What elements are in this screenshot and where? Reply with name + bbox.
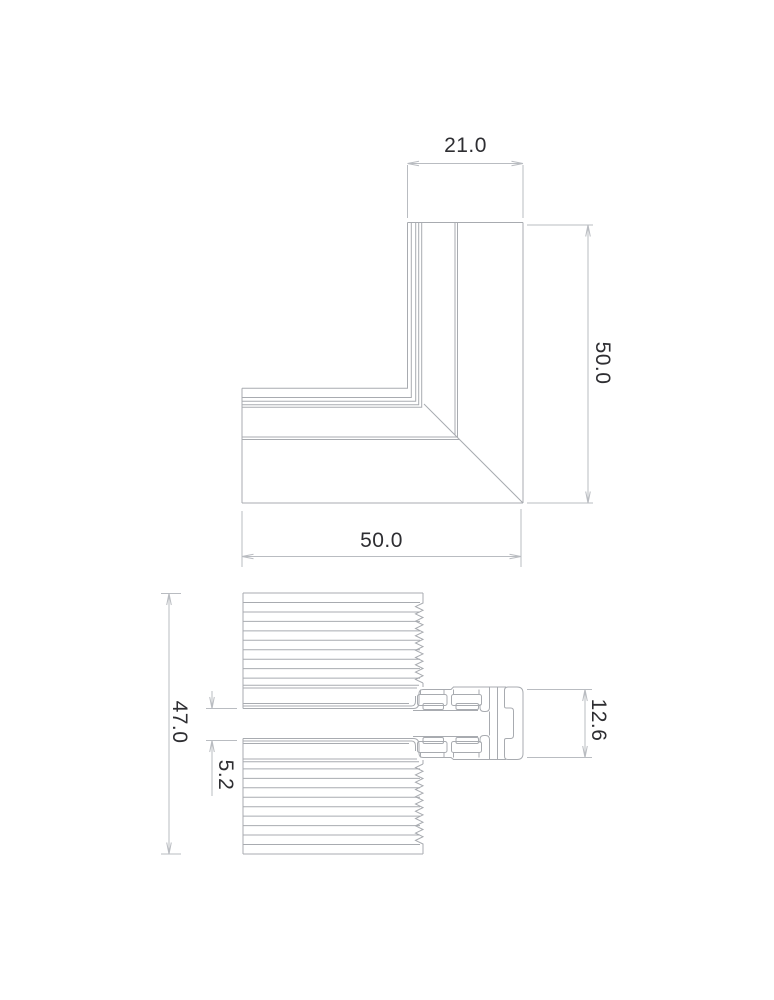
dimension-label-top-width: 21.0 — [408, 133, 523, 159]
dimension-label-profile-height: 12.6 — [585, 690, 611, 750]
dimension-label-bottom-width: 50.0 — [242, 528, 521, 554]
technical-drawing-canvas: 21.0 50.0 50.0 47.0 5.2 12.6 — [0, 0, 774, 1000]
section-view-profile-lines — [243, 593, 523, 854]
drawing-linework — [0, 0, 774, 1000]
corner-view-profile-lines — [242, 223, 523, 504]
dimension-label-right-height: 50.0 — [589, 333, 615, 393]
dimension-label-slot-gap: 5.2 — [212, 745, 238, 805]
dimension-label-overall-height: 47.0 — [166, 692, 192, 752]
